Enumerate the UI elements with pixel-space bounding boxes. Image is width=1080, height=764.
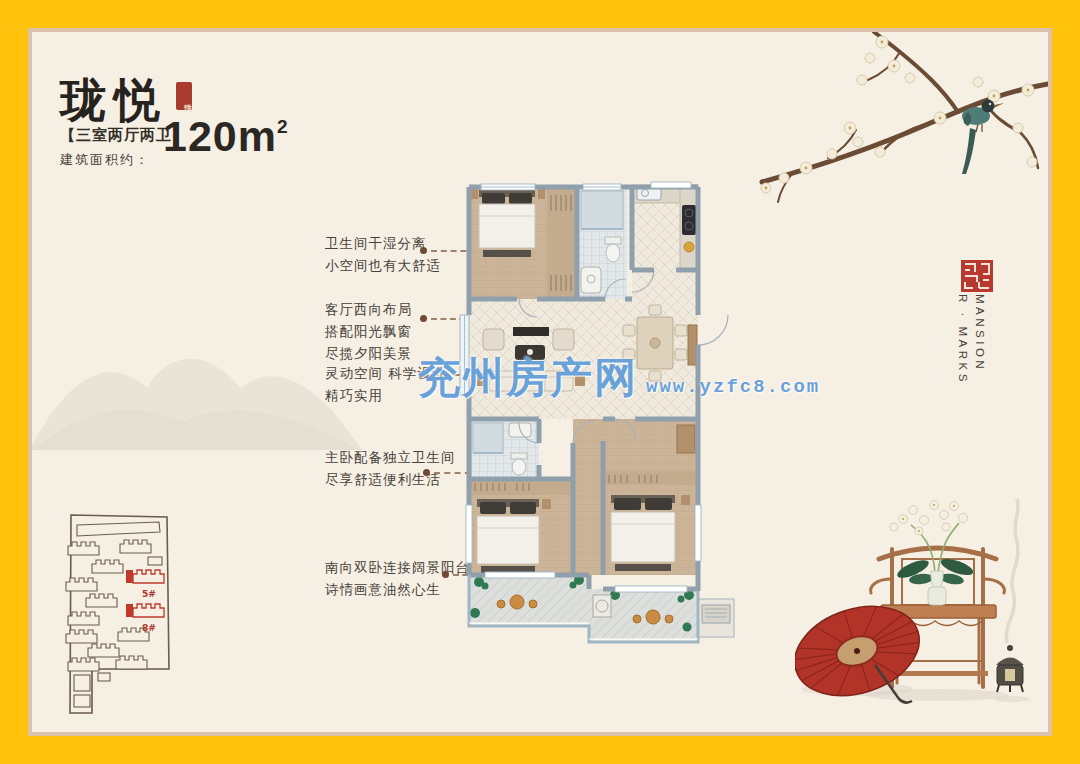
brand-seal-icon xyxy=(961,260,993,292)
annotation-bathroom: 卫生间干湿分离小空间也有大舒适 xyxy=(325,232,441,276)
entry-hall-floor xyxy=(632,270,698,300)
building-label-5: 5# xyxy=(142,589,156,599)
annotation-balcony: 南向双卧连接阔景阳台诗情画意油然心生 xyxy=(325,556,470,600)
vase xyxy=(931,571,943,589)
watermark-url: www.yzfc8.com xyxy=(646,376,820,398)
watermark-site-name: 兖州房产网 xyxy=(418,350,638,406)
highlighted-buildings: 5# 8# xyxy=(126,570,164,633)
site-plan: 5# 8# xyxy=(58,503,188,725)
plum-blossom-bird-decoration xyxy=(732,32,1048,204)
bird-icon xyxy=(962,100,1004,175)
annotation-master-bath: 主卧配备独立卫生间尽享舒适便利生活 xyxy=(325,446,456,490)
leader-dot xyxy=(420,315,427,322)
leader-dot xyxy=(423,469,430,476)
chair-umbrella-decoration xyxy=(795,475,1050,737)
title-seal-stamp: 珑悦 xyxy=(176,82,192,110)
watermark: 兖州房产网 www.yzfc8.com xyxy=(418,350,820,406)
brand-name-vertical: MANSION R · MARKS xyxy=(954,294,988,426)
leader-dot xyxy=(420,247,427,254)
area-value: 120m2 xyxy=(163,112,289,161)
annotation-livingroom: 客厅西向布局搭配阳光飘窗 尽揽夕阳美景 xyxy=(325,298,412,364)
corridor-floor xyxy=(573,419,603,575)
lantern-icon xyxy=(996,645,1024,692)
poster-canvas: 珑悦 珑悦 【三室两厅两卫】 建筑面积约： 120m2 卫生间干湿分离小空间也有… xyxy=(28,28,1052,736)
poster: { "colors": { "frame":"#FFC30D", "paper"… xyxy=(0,0,1080,764)
area-superscript: 2 xyxy=(277,116,289,137)
leader-dot xyxy=(442,571,449,578)
page-title: 珑悦 xyxy=(60,70,168,132)
incense-smoke xyxy=(1006,499,1018,643)
floor-plan xyxy=(455,175,745,665)
building-label-8: 8# xyxy=(142,623,156,633)
ink-mountains-decoration xyxy=(32,260,362,450)
